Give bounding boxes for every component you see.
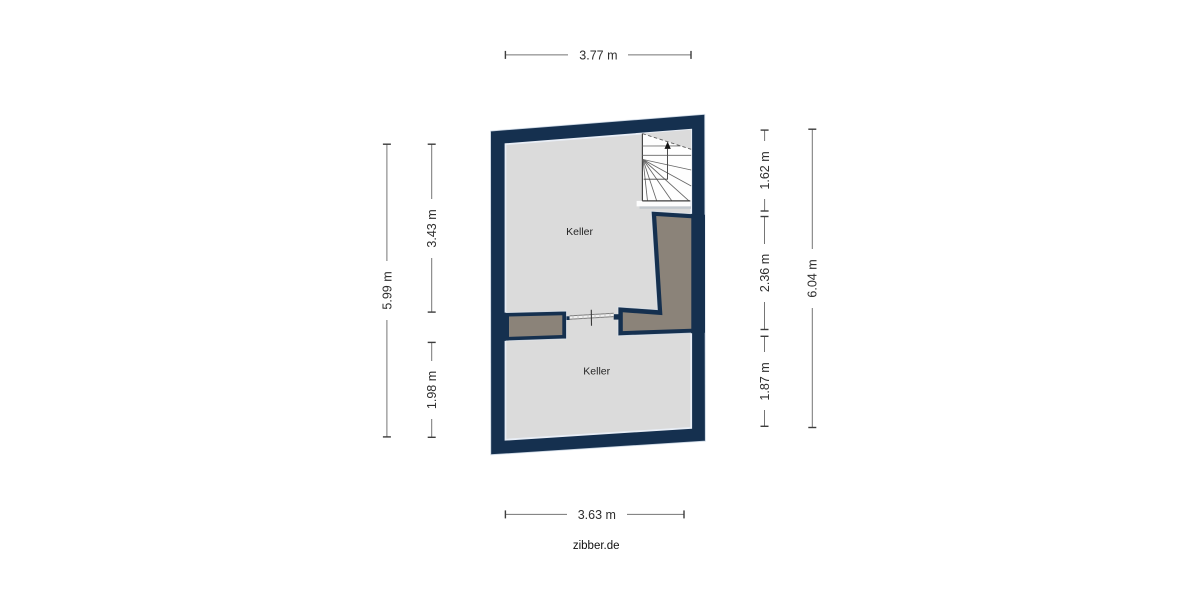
svg-text:1.62 m: 1.62 m <box>758 151 772 189</box>
svg-text:Keller: Keller <box>566 226 593 238</box>
svg-text:3.63 m: 3.63 m <box>578 508 616 522</box>
svg-text:1.87 m: 1.87 m <box>758 362 772 400</box>
svg-text:6.04 m: 6.04 m <box>806 259 820 297</box>
svg-text:Keller: Keller <box>583 366 610 378</box>
svg-text:zibber.de: zibber.de <box>573 540 620 552</box>
svg-text:3.43 m: 3.43 m <box>425 209 439 247</box>
svg-text:1.98 m: 1.98 m <box>425 371 439 409</box>
svg-text:2.36 m: 2.36 m <box>758 254 772 292</box>
svg-text:5.99 m: 5.99 m <box>380 271 394 309</box>
svg-text:3.77 m: 3.77 m <box>579 48 617 62</box>
